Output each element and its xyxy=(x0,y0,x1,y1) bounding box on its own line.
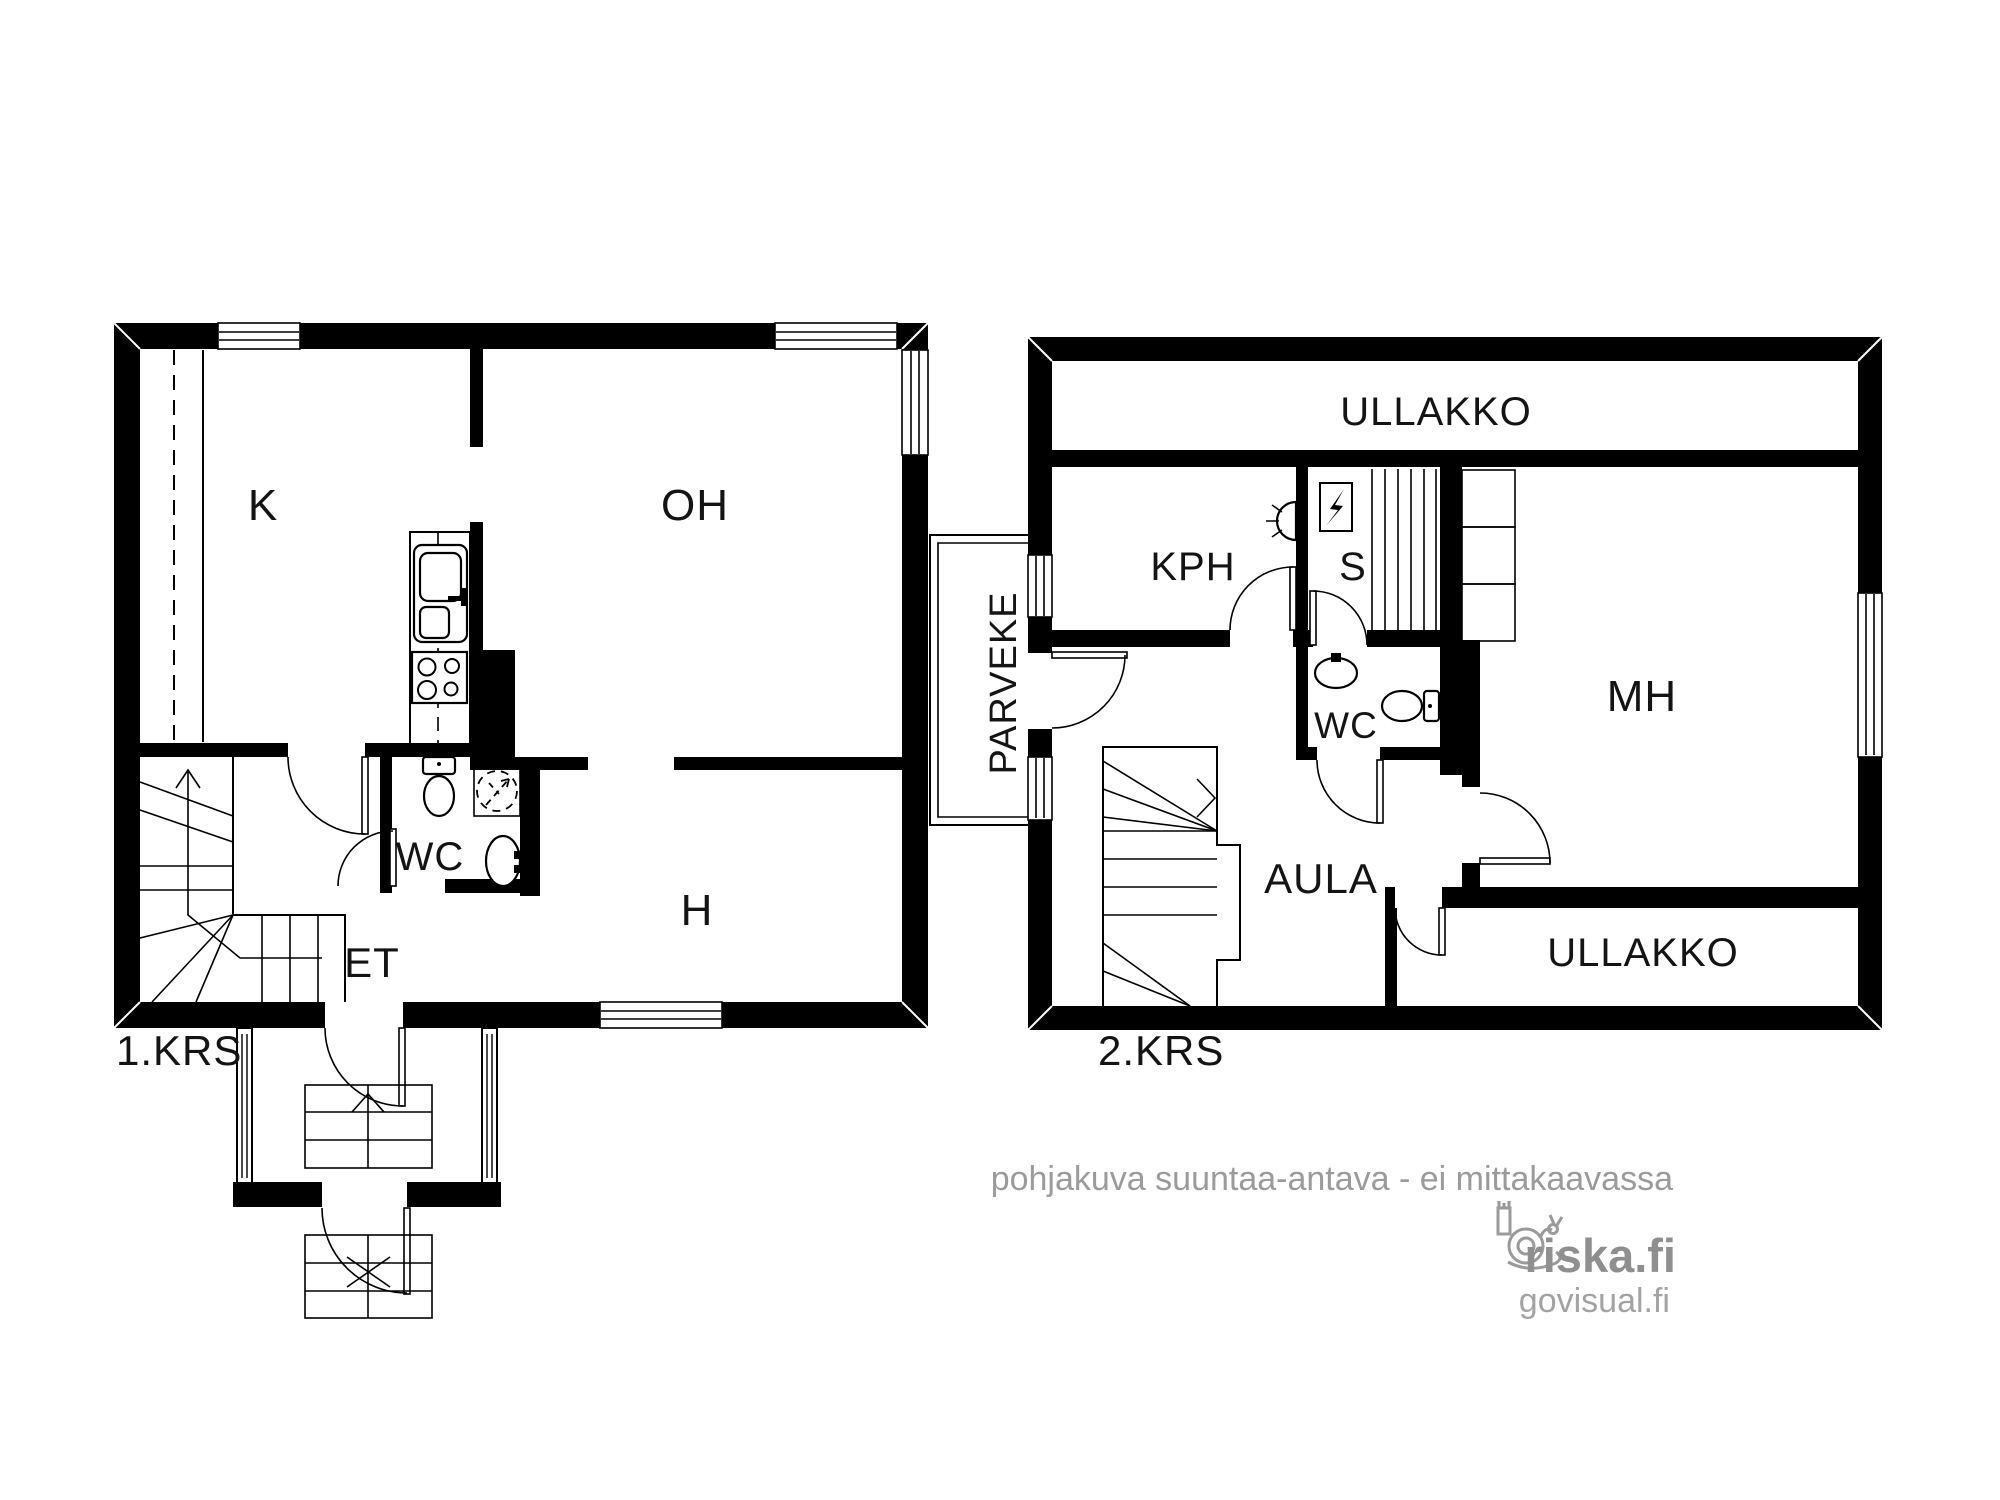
kitchen-sink-icon xyxy=(414,545,467,642)
watermark-subbrand: govisual.fi xyxy=(1519,1282,1670,1320)
toilet-icon xyxy=(423,757,455,816)
room-label-living-room: OH xyxy=(661,481,729,530)
watermark-brand: riska.fi xyxy=(1524,1229,1676,1282)
window xyxy=(1858,593,1882,757)
room-label-bedroom: MH xyxy=(1607,672,1677,721)
floorplan-page: K OH WC H ET 1.KRS xyxy=(0,0,2000,1500)
room-label-bathroom: KPH xyxy=(1150,545,1235,589)
window xyxy=(902,350,928,455)
watermark-disclaimer: pohjakuva suuntaa-antava - ei mittakaava… xyxy=(991,1160,1673,1198)
room-label-wc: WC xyxy=(396,835,465,879)
window xyxy=(775,323,897,349)
floor2-title: 2.KRS xyxy=(1098,1027,1224,1074)
room-label-attic-top: ULLAKKO xyxy=(1340,390,1532,434)
toilet-icon xyxy=(1382,691,1439,721)
window xyxy=(600,1002,722,1028)
room-label-entry: ET xyxy=(344,939,400,986)
room-label-room-h: H xyxy=(681,886,714,935)
floor1-title: 1.KRS xyxy=(116,1027,242,1074)
window xyxy=(1028,555,1052,617)
floorplan-canvas: K OH WC H ET 1.KRS xyxy=(0,0,2000,1500)
window xyxy=(218,323,300,349)
room-label-balcony: PARVEKE xyxy=(983,591,1025,774)
room-label-hall: AULA xyxy=(1264,855,1378,902)
room-label-sauna: S xyxy=(1339,545,1367,589)
room-label-kitchen: K xyxy=(248,481,278,530)
room-label-wc2: WC xyxy=(1314,705,1378,746)
stove-icon xyxy=(412,652,467,703)
room-label-attic-bottom: ULLAKKO xyxy=(1547,931,1739,975)
window xyxy=(1028,757,1052,820)
